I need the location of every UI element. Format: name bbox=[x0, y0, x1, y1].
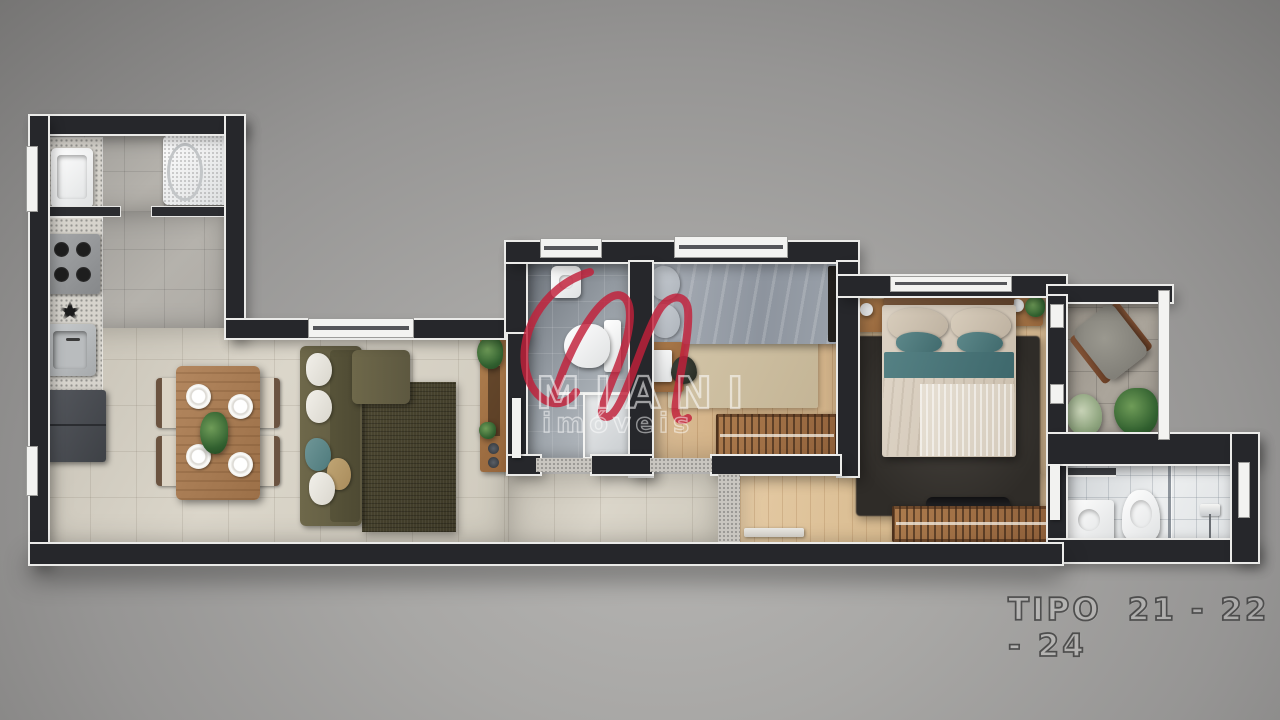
bathroom1-door bbox=[512, 398, 521, 458]
wall-segment bbox=[30, 544, 1062, 564]
wall-segment bbox=[630, 262, 652, 476]
bathroom2-shelf bbox=[1064, 468, 1116, 475]
bed1-pillow bbox=[650, 304, 680, 338]
door-threshold bbox=[650, 458, 712, 472]
wardrobe-rail bbox=[896, 522, 1046, 525]
window bbox=[674, 236, 788, 258]
door-threshold bbox=[718, 474, 740, 542]
console-vase bbox=[488, 443, 499, 454]
stove-burner bbox=[76, 242, 91, 257]
sofa-chaise bbox=[352, 350, 410, 404]
cooktop-stove bbox=[47, 234, 100, 294]
bench bbox=[744, 528, 804, 537]
window bbox=[308, 318, 414, 338]
table-centerpiece-plant bbox=[200, 412, 228, 454]
console-vase bbox=[488, 457, 499, 468]
sofa-pillow-white bbox=[309, 472, 335, 505]
balcony-edge-trim bbox=[1158, 290, 1170, 440]
bed2-pillow-teal bbox=[957, 332, 1003, 354]
stove-burner bbox=[54, 242, 69, 257]
window bbox=[26, 446, 38, 496]
wardrobe-rail bbox=[720, 434, 834, 437]
sofa-pillow-white bbox=[306, 353, 332, 386]
window-frame bbox=[313, 326, 409, 330]
desk-chair bbox=[671, 356, 697, 384]
wall-segment bbox=[30, 116, 244, 134]
console-plant-small bbox=[479, 422, 496, 439]
wall-segment bbox=[1048, 286, 1172, 302]
bed1-pillow bbox=[650, 266, 680, 300]
bathroom1-sink-basin bbox=[559, 275, 573, 289]
nightstand-lamp bbox=[860, 303, 873, 316]
console-plant bbox=[477, 337, 503, 369]
bathroom2-sink bbox=[1066, 500, 1114, 542]
balcony-plant-dark bbox=[1114, 388, 1158, 436]
plate bbox=[186, 384, 211, 409]
wall-segment bbox=[152, 207, 230, 216]
shower-tray bbox=[585, 395, 629, 457]
living-room-rug bbox=[362, 382, 456, 532]
nightstand-plant bbox=[1025, 297, 1045, 317]
window bbox=[540, 238, 602, 258]
washing-machine-drum bbox=[167, 143, 203, 201]
window bbox=[890, 276, 1012, 292]
plan-type-label: TIPO bbox=[1008, 592, 1102, 628]
window-frame bbox=[895, 282, 1007, 285]
plan-title: TIPO21 - 22 - 24 bbox=[1008, 592, 1280, 664]
shower2-pipe bbox=[1209, 514, 1211, 542]
shower2-glass bbox=[1168, 466, 1171, 542]
bathroom2-door bbox=[1050, 464, 1060, 520]
shower-glass bbox=[556, 392, 630, 395]
wall-segment bbox=[592, 456, 652, 474]
kitchen-faucet bbox=[66, 338, 80, 341]
stove-burner bbox=[54, 267, 69, 282]
window bbox=[1238, 462, 1250, 518]
toilet2-bowl bbox=[1130, 500, 1152, 528]
refrigerator-seam bbox=[45, 424, 106, 426]
wall-segment bbox=[712, 456, 840, 474]
desk-laptop bbox=[652, 350, 672, 382]
plate bbox=[228, 394, 253, 419]
floorplan-render: MIANI imóveis TIPO21 - 22 - 24 bbox=[0, 0, 1280, 720]
plate bbox=[228, 452, 253, 477]
bed2-throw bbox=[920, 384, 1014, 456]
hall-corridor-floor bbox=[508, 474, 720, 544]
sliding-door bbox=[1050, 384, 1064, 404]
washing-machine bbox=[163, 135, 231, 205]
bathroom1-sink bbox=[551, 266, 581, 298]
wall-segment bbox=[1048, 540, 1258, 562]
toilet2 bbox=[1122, 490, 1160, 542]
kitchen-sink bbox=[46, 324, 96, 376]
kitchen-sink-basin bbox=[53, 331, 87, 369]
sofa-pillow-white bbox=[306, 390, 332, 423]
window bbox=[26, 146, 38, 212]
window-frame bbox=[679, 245, 783, 249]
stove-burner bbox=[76, 267, 91, 282]
wall-segment bbox=[226, 116, 244, 338]
toilet bbox=[564, 324, 610, 368]
bed1-headboard bbox=[828, 266, 837, 342]
bedroom2-wardrobe bbox=[892, 506, 1050, 542]
window-frame bbox=[544, 246, 598, 250]
wall-segment bbox=[1048, 434, 1258, 464]
wall-segment bbox=[44, 207, 120, 216]
bedroom1-wardrobe bbox=[716, 414, 838, 458]
door-threshold bbox=[536, 458, 592, 472]
bed2-blanket-teal bbox=[884, 352, 1014, 379]
bed2-pillow-teal bbox=[896, 332, 942, 354]
laundry-sink bbox=[51, 148, 93, 208]
laundry-sink-basin bbox=[57, 155, 87, 199]
refrigerator bbox=[45, 390, 106, 462]
balcony-plant-light bbox=[1066, 394, 1102, 436]
bathroom2-sink-basin bbox=[1078, 509, 1100, 531]
sliding-door bbox=[1050, 304, 1064, 328]
